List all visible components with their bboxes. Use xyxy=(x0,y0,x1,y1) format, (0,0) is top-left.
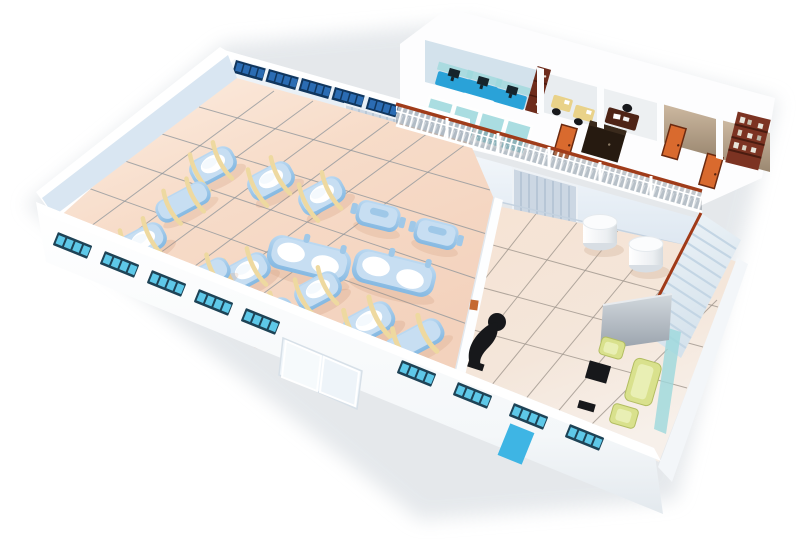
round-table xyxy=(629,237,663,273)
floorplan-3d-render-canvas xyxy=(0,0,800,550)
round-table xyxy=(583,215,617,251)
wall-picture xyxy=(469,299,478,310)
facility-3d-floorplan xyxy=(0,0,800,550)
